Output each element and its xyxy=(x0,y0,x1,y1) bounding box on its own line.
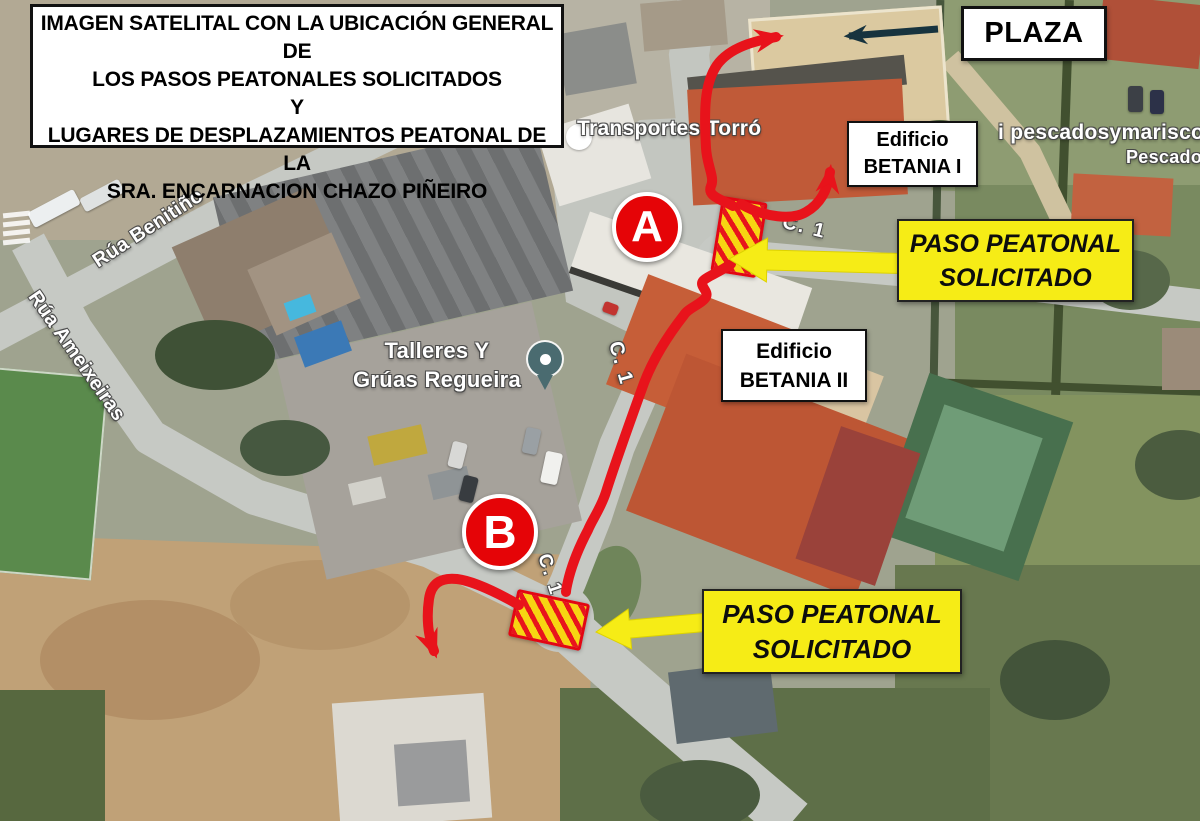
betania1-callout-line1: Edificio xyxy=(876,127,948,154)
betania2-callout-line1: Edificio xyxy=(756,337,832,366)
betania2-callout: Edificio BETANIA II xyxy=(721,329,867,402)
paso-b-line2: SOLICITADO xyxy=(753,632,911,667)
paso-a-line2: SOLICITADO xyxy=(939,261,1091,295)
paso-b-pointer-arrow xyxy=(594,602,710,652)
walk-route-to-betania1-arrow xyxy=(741,172,830,217)
plaza-callout-text: PLAZA xyxy=(984,17,1083,50)
title-line-1: IMAGEN SATELITAL CON LA UBICACIÓN GENERA… xyxy=(33,10,561,66)
walk-route-to-plaza-arrow xyxy=(705,37,776,206)
betania1-callout: Edificio BETANIA I xyxy=(847,121,978,187)
plaza-pointer-arrow xyxy=(849,29,938,36)
paso-solicitado-b-callout: PASO PEATONAL SOLICITADO xyxy=(702,589,962,674)
betania1-callout-line2: BETANIA I xyxy=(864,154,962,181)
paso-solicitado-a-callout: PASO PEATONAL SOLICITADO xyxy=(897,219,1134,302)
paso-b-line1: PASO PEATONAL xyxy=(722,597,942,632)
point-marker-a-letter: A xyxy=(631,202,663,252)
figure-title-box: IMAGEN SATELITAL CON LA UBICACIÓN GENERA… xyxy=(30,4,564,148)
point-marker-b: B xyxy=(462,494,538,570)
title-line-2: LOS PASOS PEATONALES SOLICITADOS xyxy=(33,66,561,94)
paso-a-pointer-arrow xyxy=(728,237,898,285)
title-line-5: SRA. ENCARNACION CHAZO PIÑEIRO xyxy=(33,178,561,206)
point-marker-b-letter: B xyxy=(483,505,516,559)
point-marker-a: A xyxy=(612,192,682,262)
plaza-callout: PLAZA xyxy=(961,6,1107,61)
title-line-3: Y xyxy=(33,94,561,122)
satellite-map-figure: Transportes Torró i pescadosymarisco Pes… xyxy=(0,0,1200,821)
walk-route-from-b-arrow xyxy=(428,579,519,651)
title-line-4: LUGARES DE DESPLAZAMIENTOS PEATONAL DE L… xyxy=(33,122,561,178)
paso-a-line1: PASO PEATONAL xyxy=(910,227,1121,261)
betania2-callout-line2: BETANIA II xyxy=(740,366,849,395)
walk-route-a-to-b xyxy=(566,264,731,592)
